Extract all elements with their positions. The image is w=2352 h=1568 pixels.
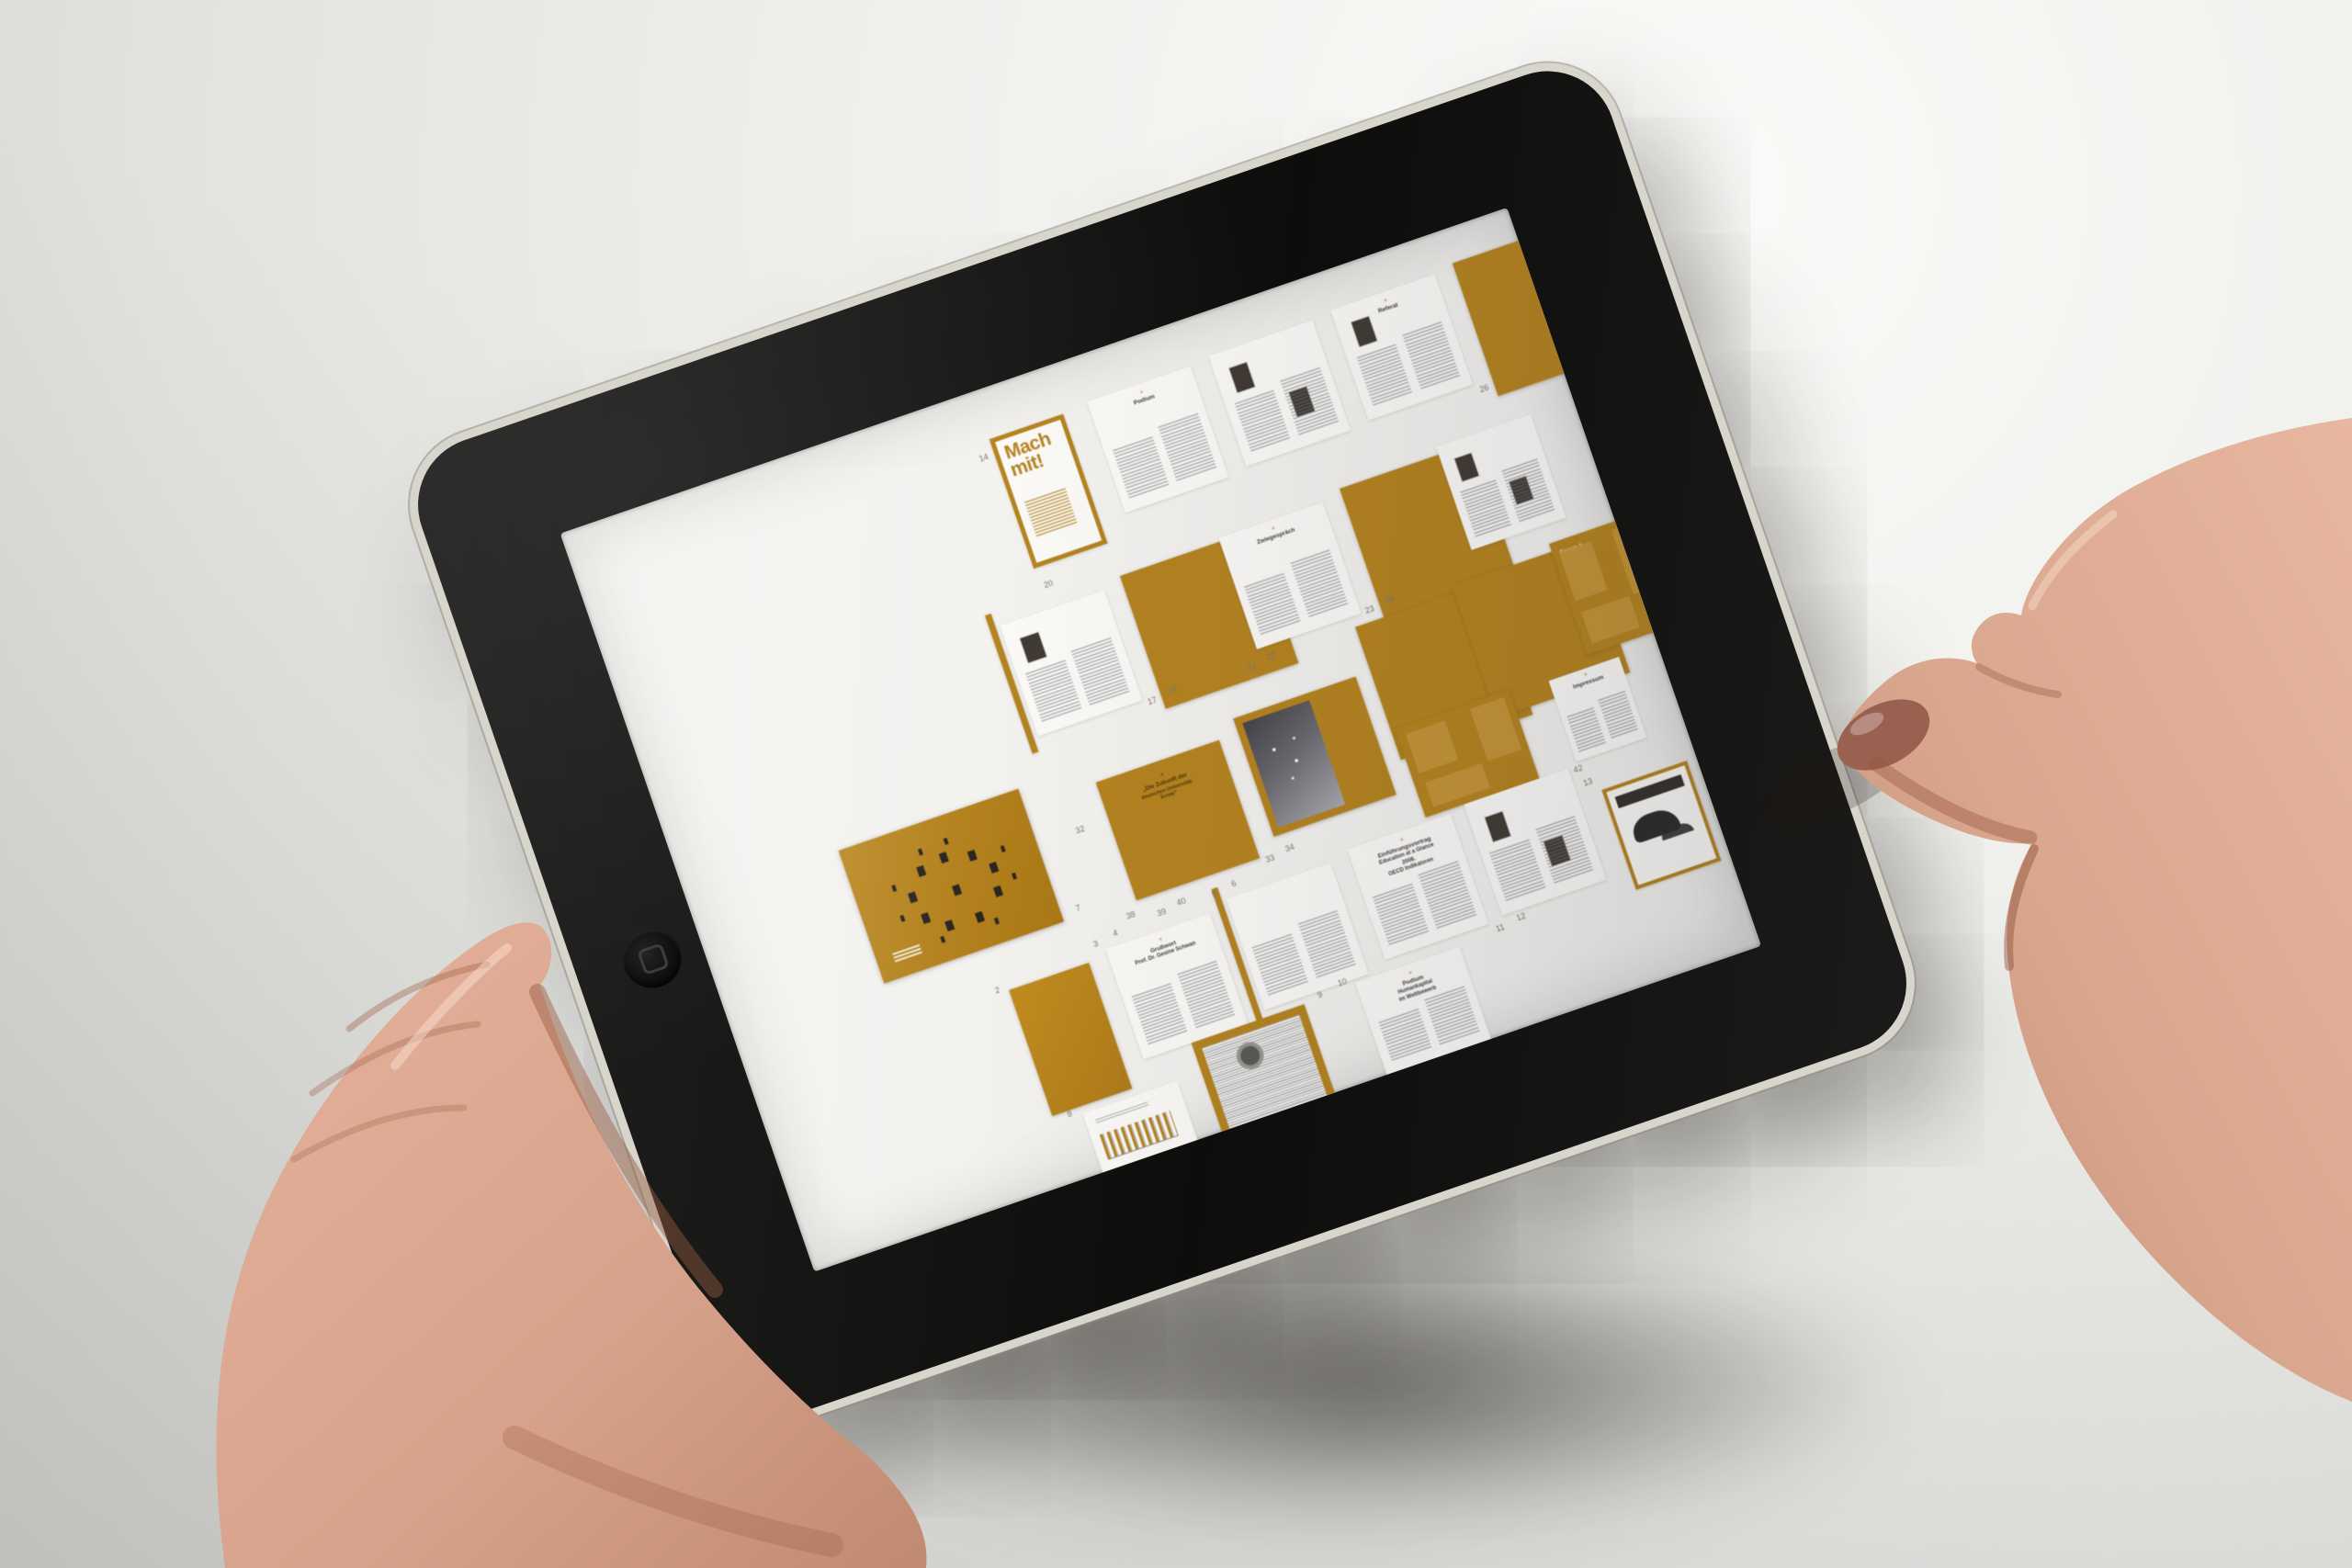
screen-content: 14Mach mit!20PodiumReferat261718Zwiegesp… <box>560 208 1761 1272</box>
text-block <box>1373 884 1429 946</box>
nightsky-photo <box>1243 701 1345 828</box>
page-thumbnail[interactable] <box>1000 590 1142 737</box>
page-number: 4 <box>1112 929 1119 938</box>
page-thumbnail[interactable] <box>1009 963 1133 1116</box>
orange-box <box>1470 697 1521 761</box>
page-number: 3 <box>1092 940 1100 949</box>
page-number: 40 <box>1176 897 1187 908</box>
text-block <box>1113 436 1169 499</box>
text-block <box>1356 344 1412 407</box>
page-thumbnail[interactable] <box>839 789 1065 984</box>
tablet-screen[interactable]: 14Mach mit!20PodiumReferat261718Zwiegesp… <box>560 208 1761 1272</box>
text-block <box>1235 390 1291 453</box>
page-number: 11 <box>1495 923 1506 934</box>
page-heading: Podium <box>1093 375 1193 421</box>
page-number: 9 <box>1317 990 1324 999</box>
orange-box <box>1406 721 1458 773</box>
page-number: 12 <box>1516 912 1527 923</box>
page-number: 7 <box>1075 904 1082 913</box>
page-number: 13 <box>1582 777 1593 788</box>
page-thumbnail[interactable] <box>1601 761 1721 889</box>
home-button[interactable] <box>615 921 689 996</box>
photo-box <box>1021 633 1046 663</box>
text-block <box>1071 637 1130 706</box>
text-block <box>1378 1009 1431 1063</box>
page-thumbnail[interactable]: Mach mit! <box>989 414 1108 569</box>
page-number: 38 <box>1125 910 1136 921</box>
page-heading: „Die Zukunft derdeutschen Universität.Es… <box>1105 754 1227 818</box>
page-number: 39 <box>1156 908 1167 919</box>
page-heading: Zwiegespräch <box>1225 511 1325 557</box>
orange-box <box>1611 520 1662 594</box>
text-block <box>1566 706 1606 751</box>
page-number: 33 <box>1264 853 1275 864</box>
text-block <box>1535 816 1594 885</box>
photo-box <box>1229 362 1255 392</box>
text-block <box>1025 660 1081 723</box>
text-block <box>1290 549 1349 618</box>
page-number: 20 <box>1043 579 1054 590</box>
page-number: 23 <box>1364 604 1375 615</box>
page-number: 14 <box>978 453 989 464</box>
text-block <box>1424 987 1479 1046</box>
page-thumbnail[interactable] <box>1233 677 1396 838</box>
text-block <box>1280 367 1339 436</box>
page-number: 34 <box>1284 843 1295 854</box>
page-thumbnail[interactable] <box>1208 320 1351 467</box>
page-thumbnail[interactable] <box>1453 218 1631 396</box>
page-number: 17 <box>1147 696 1158 707</box>
photo-box <box>1454 453 1478 481</box>
page-thumbnail[interactable]: EinführungsvortragEducation at a Glance2… <box>1347 813 1489 960</box>
text-block <box>1297 910 1356 979</box>
page-thumbnail[interactable]: „Die Zukunft derdeutschen Universität.Es… <box>1096 740 1260 901</box>
thumb-nail <box>1826 685 1941 785</box>
photo-box <box>1351 316 1377 346</box>
photo-box <box>1485 811 1510 841</box>
text-block <box>1460 479 1511 537</box>
page-number: 42 <box>1573 764 1584 775</box>
text-block <box>1159 413 1217 482</box>
page-thumbnail[interactable]: Podium <box>1087 366 1229 513</box>
booklet-cover-title: Mach mit! <box>995 420 1074 483</box>
photo-scene: 14Mach mit!20PodiumReferat261718Zwiegesp… <box>0 0 2352 1568</box>
text-block <box>1177 960 1236 1029</box>
text-block <box>1489 839 1545 901</box>
page-thumbnail[interactable]: PodiumHumankapitalim Wettbewerb <box>1355 946 1491 1074</box>
orange-box <box>1582 596 1640 643</box>
page-number: 6 <box>1230 879 1238 888</box>
page-number: 8 <box>1066 1110 1073 1119</box>
page-thumbnail[interactable] <box>1227 863 1369 1010</box>
text-block <box>1419 861 1477 930</box>
text-block <box>1244 572 1300 635</box>
orange-box <box>1559 541 1608 601</box>
page-number: 2 <box>994 986 1001 995</box>
text-block <box>1252 933 1308 996</box>
tablet-device: 14Mach mit!20PodiumReferat261718Zwiegesp… <box>400 52 1925 1435</box>
home-button-icon <box>637 942 670 976</box>
page-number: 32 <box>1074 824 1085 835</box>
text-block <box>1402 321 1461 389</box>
text-block <box>1501 458 1555 523</box>
page-number: 26 <box>1478 384 1489 395</box>
page-thumbnail[interactable]: Referat <box>1330 274 1473 421</box>
text-block <box>1598 691 1639 740</box>
text-block <box>1131 983 1187 1045</box>
